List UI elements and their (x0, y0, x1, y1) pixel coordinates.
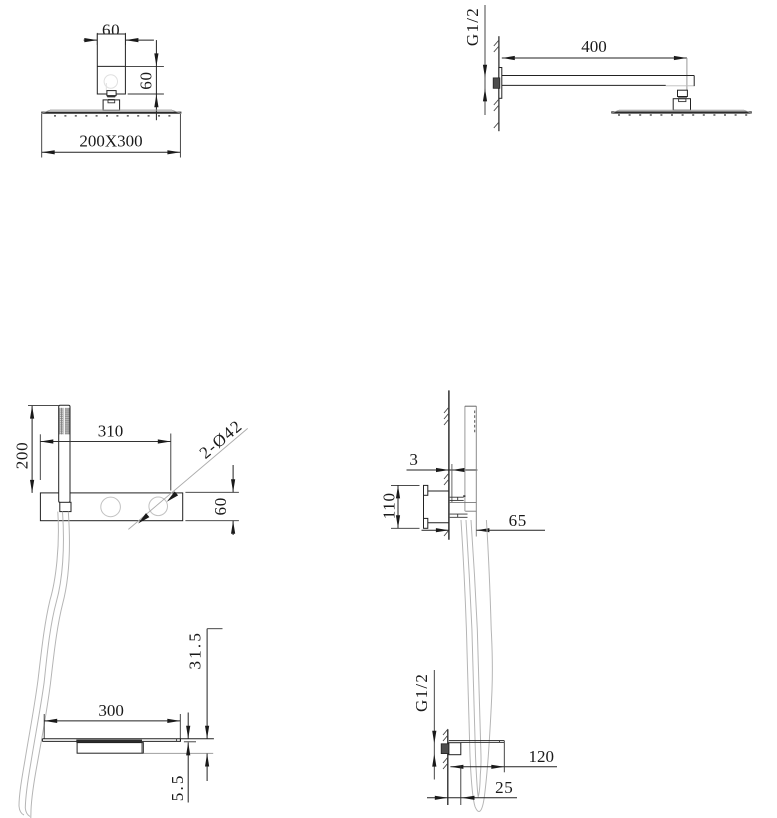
svg-text:31.5: 31.5 (186, 631, 205, 670)
svg-text:G1/2: G1/2 (463, 7, 482, 46)
svg-text:110: 110 (380, 492, 399, 519)
svg-text:200: 200 (13, 442, 32, 470)
svg-text:200X300: 200X300 (79, 132, 142, 151)
svg-text:G1/2: G1/2 (412, 673, 431, 712)
svg-text:65: 65 (509, 511, 527, 530)
svg-text:3: 3 (409, 450, 418, 469)
svg-text:310: 310 (98, 422, 124, 441)
svg-text:300: 300 (98, 701, 124, 720)
svg-text:120: 120 (529, 747, 555, 766)
svg-text:5.5: 5.5 (168, 773, 187, 801)
svg-text:25: 25 (495, 778, 513, 797)
svg-text:60: 60 (137, 71, 156, 89)
svg-text:60: 60 (211, 497, 230, 515)
svg-text:400: 400 (581, 37, 607, 56)
